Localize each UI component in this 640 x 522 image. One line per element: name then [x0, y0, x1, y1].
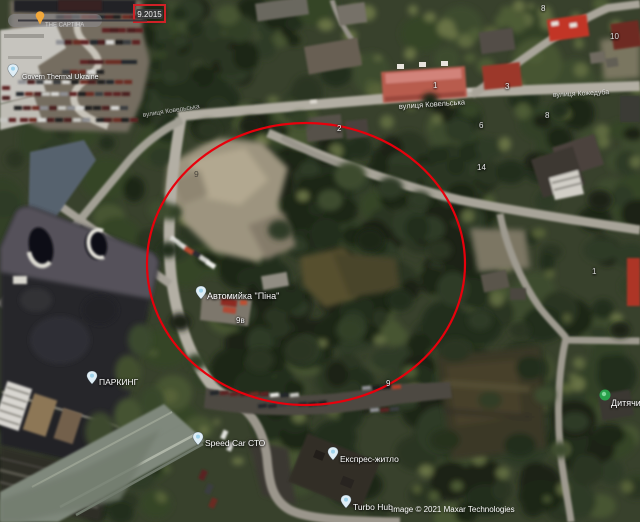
- svg-text:1: 1: [433, 81, 438, 90]
- svg-text:10: 10: [610, 32, 619, 41]
- svg-text:Дитячий: Дитячий: [611, 398, 640, 408]
- svg-text:Speed Car СТО: Speed Car СТО: [205, 438, 266, 448]
- svg-text:1: 1: [592, 267, 597, 276]
- svg-text:Експрес-житло: Експрес-житло: [340, 454, 399, 464]
- svg-text:Govern Thermal Ukraine: Govern Thermal Ukraine: [22, 74, 99, 81]
- svg-text:ПАРКИНГ: ПАРКИНГ: [99, 377, 139, 387]
- svg-text:Автомийка "Піна": Автомийка "Піна": [207, 291, 279, 301]
- svg-text:ТНЕ САРТІНА: ТНЕ САРТІНА: [45, 23, 84, 29]
- svg-text:3: 3: [505, 82, 510, 91]
- svg-text:8: 8: [545, 111, 550, 120]
- svg-text:Turbo Hub: Turbo Hub: [353, 502, 393, 512]
- svg-text:9: 9: [194, 169, 199, 179]
- svg-text:9в: 9в: [236, 316, 245, 325]
- svg-text:6: 6: [479, 121, 484, 130]
- svg-text:Image © 2021 Maxar Technologie: Image © 2021 Maxar Technologies: [391, 505, 515, 514]
- svg-text:8: 8: [541, 4, 546, 13]
- svg-text:2: 2: [337, 124, 342, 133]
- svg-text:9: 9: [386, 379, 391, 388]
- svg-text:14: 14: [477, 163, 486, 172]
- svg-text:9.2015: 9.2015: [137, 10, 162, 19]
